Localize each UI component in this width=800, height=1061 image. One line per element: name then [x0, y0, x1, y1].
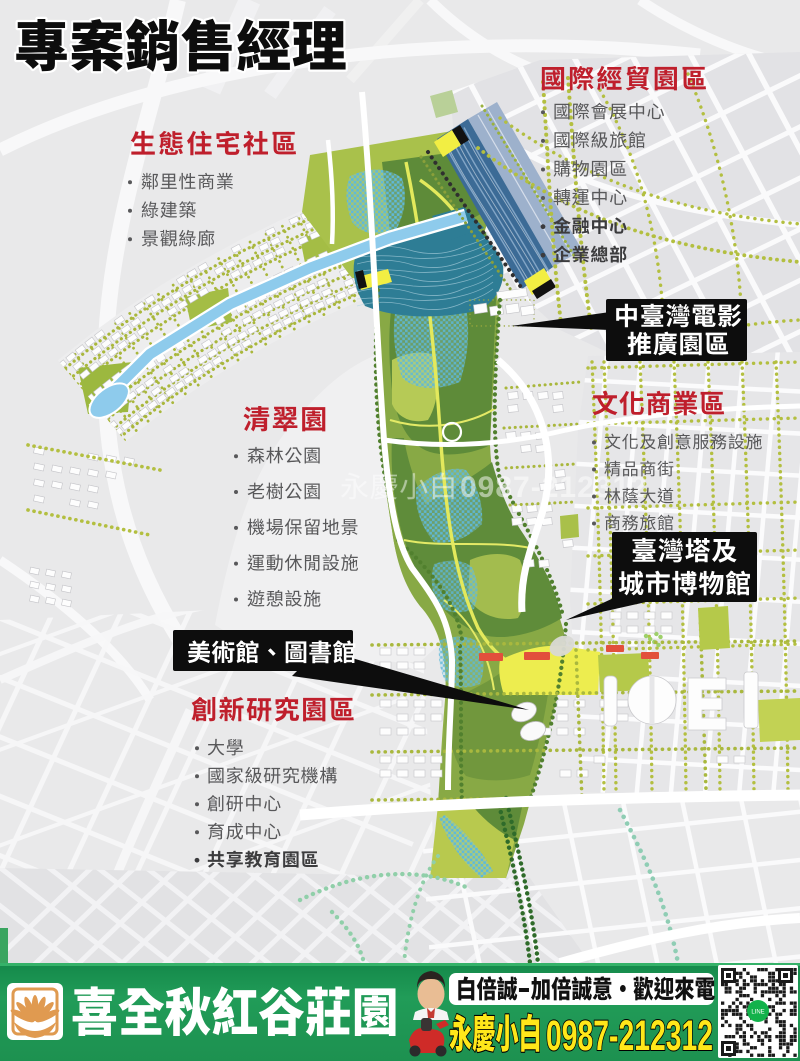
svg-text:0987-212312: 0987-212312	[546, 1012, 713, 1060]
svg-text:LINE: LINE	[751, 1010, 764, 1016]
